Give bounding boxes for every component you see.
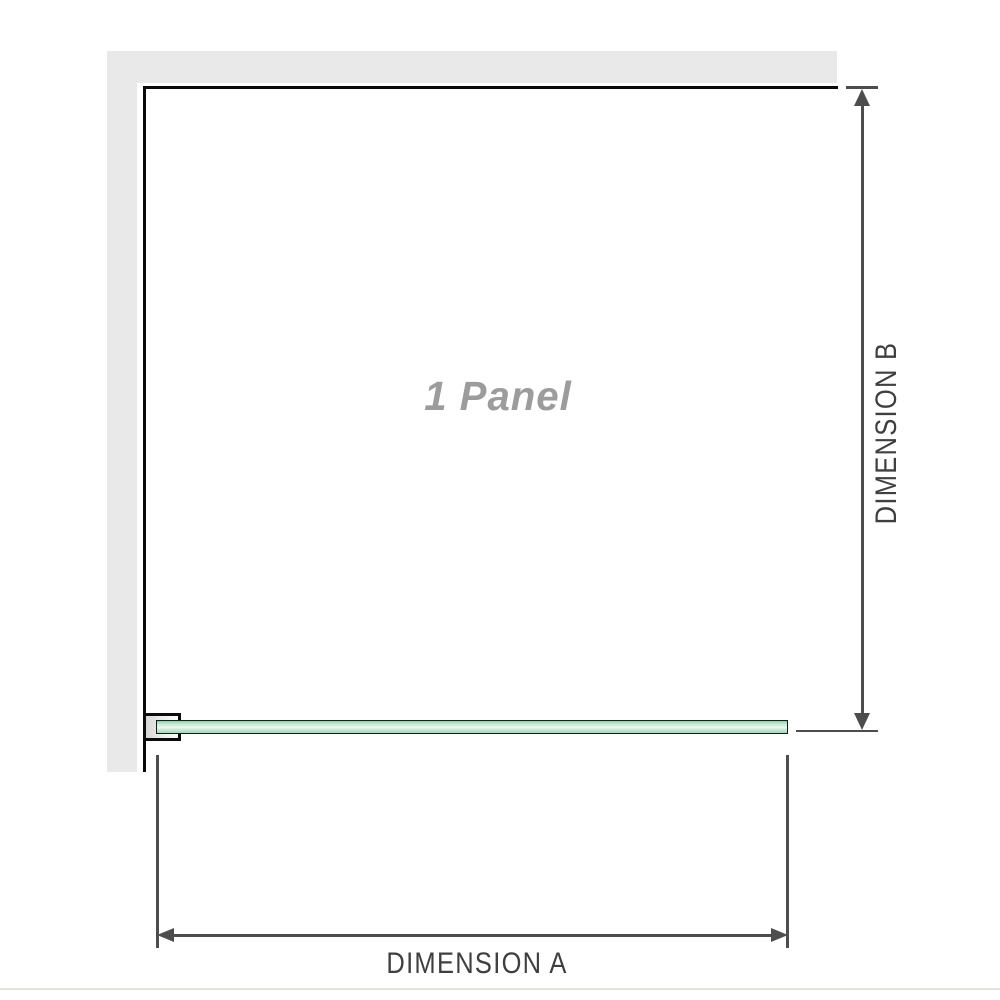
diagram-canvas: 1 Panel DIMENSION B DIMENSION A: [0, 0, 1000, 1000]
dimension-a-line: [170, 934, 774, 938]
dimension-a-arrowhead-left-icon: [157, 928, 174, 942]
glass-panel-bar: [156, 720, 788, 734]
dimension-b-line: [861, 98, 865, 716]
dimension-b-arrowhead-up-icon: [854, 89, 870, 106]
dimension-a-arrowhead-right-icon: [771, 928, 788, 942]
page-bottom-rule: [0, 988, 1000, 990]
dimension-a-extension-left: [156, 755, 159, 948]
dimension-a-extension-right: [786, 755, 789, 948]
dimension-b-arrowhead-down-icon: [854, 713, 870, 730]
wall-left: [107, 51, 137, 772]
wall-edge-top: [143, 86, 838, 89]
dimension-b-label: DIMENSION B: [870, 306, 904, 561]
wall-edge-left: [143, 86, 146, 772]
panel-count-label: 1 Panel: [351, 370, 645, 422]
dimension-a-label: DIMENSION A: [307, 947, 647, 981]
wall-top: [107, 51, 837, 83]
